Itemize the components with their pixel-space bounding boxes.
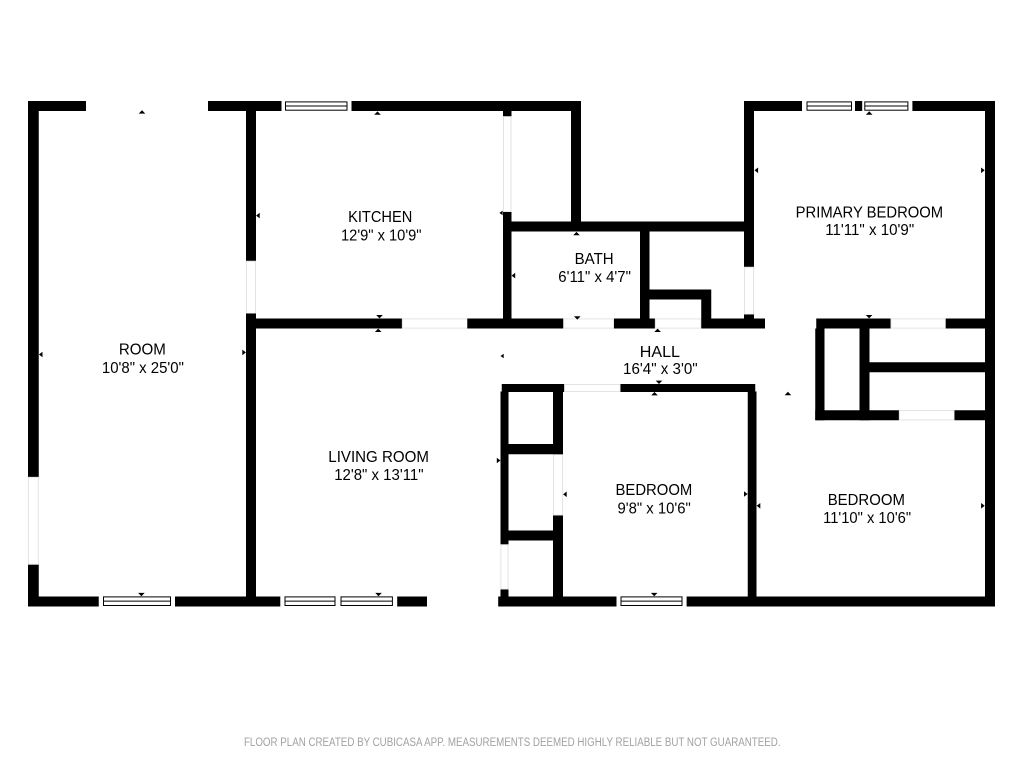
svg-text:BEDROOM: BEDROOM [616, 482, 693, 499]
svg-text:BEDROOM: BEDROOM [828, 492, 905, 509]
svg-text:FLOOR PLAN CREATED BY CUBICASA: FLOOR PLAN CREATED BY CUBICASA APP. MEAS… [244, 735, 781, 749]
svg-text:9'8" x 10'6": 9'8" x 10'6" [618, 500, 691, 517]
svg-text:KITCHEN: KITCHEN [348, 209, 412, 226]
svg-text:BATH: BATH [575, 251, 614, 268]
svg-text:11'10" x 10'6": 11'10" x 10'6" [823, 510, 911, 527]
svg-text:10'8" x 25'0": 10'8" x 25'0" [102, 360, 184, 377]
svg-text:ROOM: ROOM [119, 341, 166, 358]
svg-text:11'11" x 10'9": 11'11" x 10'9" [825, 222, 914, 239]
svg-text:12'9" x 10'9": 12'9" x 10'9" [341, 227, 422, 244]
svg-text:12'8" x 13'11": 12'8" x 13'11" [334, 467, 423, 484]
svg-text:16'4" x 3'0": 16'4" x 3'0" [623, 361, 698, 378]
svg-text:PRIMARY BEDROOM: PRIMARY BEDROOM [796, 205, 944, 222]
svg-text:6'11" x 4'7": 6'11" x 4'7" [558, 269, 631, 286]
svg-text:LIVING ROOM: LIVING ROOM [328, 449, 429, 466]
svg-text:HALL: HALL [640, 344, 680, 361]
